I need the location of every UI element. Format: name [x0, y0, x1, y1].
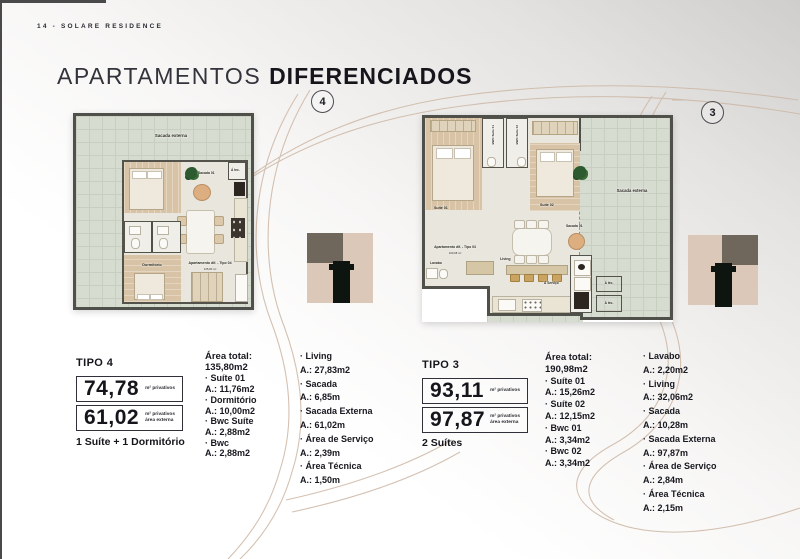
plan4-sacada01-label: Sacada 01: [198, 171, 215, 175]
plan3-suite01-wardrobe: [430, 120, 476, 132]
plan4-bathrooms: [124, 221, 181, 253]
page-title: APARTAMENTOS DIFERENCIADOS: [57, 63, 472, 90]
area-item-name: Suíte 02: [545, 399, 637, 411]
area-item-value: A.: 2,88m2: [205, 448, 297, 459]
plan3-suite02-label: Suíte 02: [540, 203, 554, 207]
plan3-suite02-room: [530, 143, 580, 211]
area-item-name: Sacada Externa: [643, 433, 753, 447]
tipo4-external-unit-line2: área externa: [145, 418, 173, 423]
plan4-dormitorio-bed: [134, 273, 165, 300]
plan4-unit-area-label: 135,80 m²: [182, 267, 238, 271]
plan3-plant-icon: [573, 166, 586, 179]
plan3-bwc02-room: BWC Suíte 02: [506, 118, 528, 168]
area-item-value: A.: 2,39m: [300, 447, 400, 461]
plan3-service-cabinet: [574, 277, 591, 291]
plan4-number-badge: 4: [311, 90, 334, 113]
plan4-area-tecnica-room: Á tec.: [228, 162, 246, 180]
tipo3-external-area-unit: m² privativos área externa: [490, 414, 520, 426]
brand-mark-quad: [307, 233, 343, 263]
plan4-unit-title-label: Apartamento dif. - Tipo 04: [182, 261, 238, 265]
area-item-name: Living: [300, 350, 400, 364]
area-item-value: A.: 12,15m2: [545, 411, 637, 423]
plan4-sacada-externa-label: Sacada externa: [131, 133, 211, 138]
tipo3-total-label: Área total:: [545, 352, 637, 364]
plan3-lavabo-toilet: [439, 269, 448, 279]
plan3-cutout: [422, 289, 487, 322]
plan3-stove: [522, 299, 542, 312]
tipo3-total-value: 190,98m2: [545, 364, 637, 376]
plan3-servico-label: Á Serviço: [544, 281, 559, 285]
area-item-value: A.: 1,50m: [300, 474, 400, 488]
plan3-suite01-label: Suíte 01: [434, 206, 448, 210]
plan4-toilet: [131, 238, 140, 249]
area-item-value: A.: 11,76m2: [205, 384, 297, 395]
plan3-suite02-wardrobe: [532, 121, 578, 135]
plan3-unit-title-label: Apartamento dif. - Tipo 03: [426, 245, 484, 249]
plan4-round-table: [193, 184, 211, 201]
tipo3-external-unit-line2: área externa: [490, 420, 518, 425]
area-item-value: A.: 6,85m: [300, 391, 400, 405]
plan3-chair: [538, 255, 549, 264]
plan4-sink: [157, 226, 169, 235]
tipo3-private-area-unit: m² privativos: [490, 388, 520, 394]
plan4-suite-bed: [129, 168, 164, 210]
brand-mark-crossbar: [711, 266, 736, 272]
brand-mark-left: [307, 233, 373, 303]
tipo4-area-items-1: Suíte 01 A.: 11,76m2 Dormitório A.: 10,0…: [205, 373, 297, 459]
area-item-value: A.: 97,87m: [643, 447, 753, 461]
brand-mark-right: [688, 235, 758, 305]
plan3-service-room: [570, 255, 592, 313]
plan3-stool: [510, 274, 520, 282]
plan4-suite-room: [124, 162, 181, 213]
brochure-page: 14 - SOLARE RESIDENCE APARTAMENTOS DIFER…: [0, 0, 800, 559]
tipo4-title: TIPO 4: [76, 357, 113, 369]
plan4-chair: [214, 234, 224, 244]
plan4-unit: Sacada 01 Á tec.: [122, 160, 248, 304]
tipo3-external-area-value: 97,87: [430, 408, 485, 432]
plan3-washer-door: [578, 264, 585, 270]
plan3-suite01-bed: [432, 145, 474, 201]
page-left-rule: [0, 0, 2, 559]
plan4-stove: [231, 218, 245, 238]
area-item-value: A.: 61,02m: [300, 419, 400, 433]
area-item-name: Sacada: [300, 378, 400, 392]
plan4-dining-table: [186, 210, 215, 254]
plan4-area-tecnica-label: Á tec.: [231, 168, 240, 172]
plan3-suite02-bed: [536, 149, 574, 197]
tipo4-area-list-2: Living A.: 27,83m2 Sacada A.: 6,85m Saca…: [300, 350, 400, 488]
page-number-header: 14 - SOLARE RESIDENCE: [37, 23, 163, 30]
tipo3-external-area-box: 97,87 m² privativos área externa: [422, 407, 528, 433]
plan3-bwc01-label: BWC Suíte 01: [491, 125, 495, 145]
tipo4-external-area-box: 61,02 m² privativos área externa: [76, 405, 183, 431]
plan3-tecnica2-label: Á téc.: [597, 301, 621, 305]
tipo3-summary: 2 Suítes: [422, 437, 462, 449]
plan3-toilet: [487, 157, 496, 167]
plan4-sink: [129, 226, 141, 235]
area-item-name: Bwc Suíte: [205, 416, 297, 427]
area-item-value: A.: 15,26m2: [545, 387, 637, 399]
area-item-value: A.: 27,83m2: [300, 364, 400, 378]
plan4-dormitorio-room: Dormitório: [124, 255, 181, 302]
plan3-lavabo-sink: [426, 268, 438, 279]
tipo4-summary: 1 Suíte + 1 Dormitório: [76, 436, 185, 448]
tipo4-area-items-2: Living A.: 27,83m2 Sacada A.: 6,85m Saca…: [300, 350, 400, 488]
plan3-toilet: [517, 157, 526, 167]
plan3-wall: [487, 313, 583, 316]
tipo3-area-items-1: Suíte 01 A.: 15,26m2 Suíte 02 A.: 12,15m…: [545, 376, 637, 470]
plan3-suite01-room: [425, 118, 482, 210]
plan3-number-badge: 3: [701, 101, 724, 124]
plan3-bwc01-room: BWC Suíte 01: [482, 118, 504, 168]
plan3-sink: [498, 299, 516, 311]
plan3-unit-area-label: 190,98 m²: [426, 251, 484, 255]
tipo4-private-area-unit: m² privativos: [145, 386, 175, 392]
area-item-value: A.: 3,34m2: [545, 458, 637, 470]
floorplan-tipo4: Sacada externa Sacada 01 Á tec.: [73, 113, 254, 310]
page-title-bold: DIFERENCIADOS: [269, 63, 472, 89]
plan3-chair: [514, 255, 525, 264]
plan3-wall: [670, 115, 673, 320]
page-top-rule: [0, 0, 106, 3]
page-title-light: APARTAMENTOS: [57, 63, 261, 89]
floorplan-tipo3: Suíte 01 BWC Suíte 01 BWC Suíte 02 Suíte…: [422, 115, 673, 322]
plan3-lavabo-label: Lavabo: [430, 261, 442, 265]
plan4-chair: [214, 216, 224, 226]
area-item-value: A.: 3,34m2: [545, 435, 637, 447]
tipo4-external-unit-line1: m² privativos: [145, 412, 175, 417]
area-item-name: Área Técnica: [643, 488, 753, 502]
plan3-sacada01-label: Sacada 01: [566, 224, 583, 228]
area-item-value: A.: 2,15m: [643, 502, 753, 516]
plan3-bwc02-label: BWC Suíte 02: [515, 125, 519, 145]
plan3-service-appliance: [574, 292, 589, 309]
area-item-name: Área de Serviço: [643, 460, 753, 474]
area-item-value: A.: 2,84m: [643, 474, 753, 488]
plan4-wardrobe: [191, 272, 223, 302]
area-item-value: A.: 2,20m2: [643, 364, 753, 378]
area-item-name: Suíte 01: [545, 376, 637, 388]
plan4-fridge: [234, 182, 245, 196]
plan3-chair: [514, 220, 525, 229]
tipo4-total-value: 135,80m2: [205, 363, 297, 374]
plan3-cutout: [583, 320, 673, 322]
plan3-tecnica1-label: Á téc.: [597, 281, 621, 285]
plan3-tecnica2-box: Á téc.: [596, 295, 622, 312]
plan3-chair: [538, 220, 549, 229]
plan4-plant-icon: [185, 167, 197, 179]
area-item-value: A.: 2,88m2: [205, 427, 297, 438]
tipo4-external-area-value: 61,02: [84, 406, 139, 430]
brand-mark-quad: [722, 235, 758, 265]
tipo4-external-area-unit: m² privativos área externa: [145, 412, 175, 424]
plan3-chair: [526, 255, 537, 264]
tipo3-area-list-2: Lavabo A.: 2,20m2 Living A.: 32,06m2 Sac…: [643, 350, 753, 516]
area-item-value: A.: 32,06m2: [643, 391, 753, 405]
tipo4-private-area-box: 74,78 m² privativos: [76, 376, 183, 402]
plan3-tecnica1-box: Á téc.: [596, 276, 622, 292]
area-item-name: Sacada Externa: [300, 405, 400, 419]
tipo3-title: TIPO 3: [422, 359, 459, 371]
plan3-living-label: Living: [500, 257, 511, 261]
area-item-name: Área de Serviço: [300, 433, 400, 447]
tipo3-area-items-2: Lavabo A.: 2,20m2 Living A.: 32,06m2 Sac…: [643, 350, 753, 516]
plan4-toilet: [159, 238, 168, 249]
area-item-name: Área Técnica: [300, 460, 400, 474]
plan3-dining-table: [512, 228, 552, 256]
area-item-name: Bwc: [205, 438, 297, 449]
area-item-name: Dormitório: [205, 395, 297, 406]
tipo3-private-area-box: 93,11 m² privativos: [422, 378, 528, 404]
plan4-bathroom-divider: [151, 222, 153, 252]
tipo4-area-list-1: Área total: 135,80m2 Suíte 01 A.: 11,76m…: [205, 352, 297, 459]
area-item-name: Bwc 01: [545, 423, 637, 435]
area-item-value: A.: 10,28m: [643, 419, 753, 433]
tipo4-private-area-value: 74,78: [84, 377, 139, 401]
plan3-round-table: [568, 233, 585, 250]
area-item-value: A.: 10,00m2: [205, 406, 297, 417]
plan3-stool: [524, 274, 534, 282]
area-item-name: Living: [643, 378, 753, 392]
plan3-chair: [526, 220, 537, 229]
area-item-name: Lavabo: [643, 350, 753, 364]
tipo3-private-area-value: 93,11: [430, 379, 484, 403]
plan3-sacada-externa-label: Sacada externa: [600, 188, 664, 193]
tipo3-external-unit-line1: m² privativos: [490, 414, 520, 419]
plan3-sofa: [466, 261, 494, 275]
plan4-cabinet: [235, 274, 248, 302]
area-item-name: Suíte 01: [205, 373, 297, 384]
area-item-name: Sacada: [643, 405, 753, 419]
area-item-name: Bwc 02: [545, 446, 637, 458]
tipo3-area-list-1: Área total: 190,98m2 Suíte 01 A.: 15,26m…: [545, 352, 637, 470]
brand-mark-crossbar: [329, 264, 354, 270]
plan4-dormitorio-label: Dormitório: [128, 263, 176, 267]
